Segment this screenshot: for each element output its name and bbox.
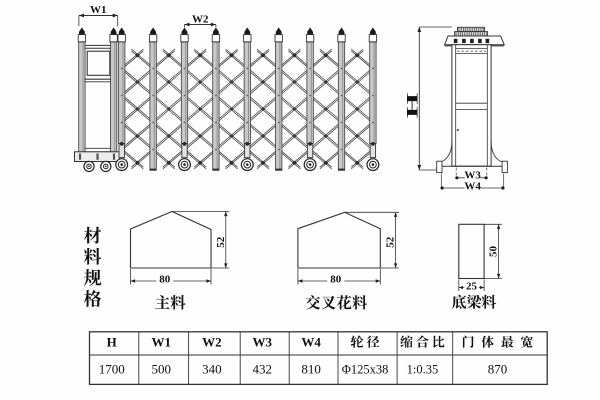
svg-text:80: 80 — [159, 274, 171, 286]
svg-text:25: 25 — [466, 281, 478, 293]
svg-text:1:0.35: 1:0.35 — [407, 362, 439, 376]
svg-text:52: 52 — [385, 236, 397, 248]
svg-text:W2: W2 — [202, 335, 222, 350]
svg-text:W2: W2 — [192, 14, 209, 26]
svg-text:W4: W4 — [464, 180, 481, 192]
svg-text:870: 870 — [488, 361, 508, 376]
svg-text:432: 432 — [252, 361, 272, 376]
svg-text:W3: W3 — [252, 335, 272, 350]
svg-text:500: 500 — [151, 361, 171, 376]
svg-text:W4: W4 — [301, 335, 321, 350]
svg-text:W1: W1 — [90, 4, 107, 16]
svg-text:1700: 1700 — [99, 361, 125, 376]
svg-text:H: H — [403, 93, 421, 119]
svg-text:340: 340 — [202, 361, 222, 376]
svg-text:50: 50 — [488, 246, 500, 258]
svg-text:W1: W1 — [151, 335, 171, 350]
svg-text:52: 52 — [215, 236, 227, 248]
svg-text:80: 80 — [330, 274, 342, 286]
svg-text:Φ125x38: Φ125x38 — [342, 362, 389, 376]
svg-text:810: 810 — [301, 361, 321, 376]
svg-text:H: H — [107, 335, 117, 350]
